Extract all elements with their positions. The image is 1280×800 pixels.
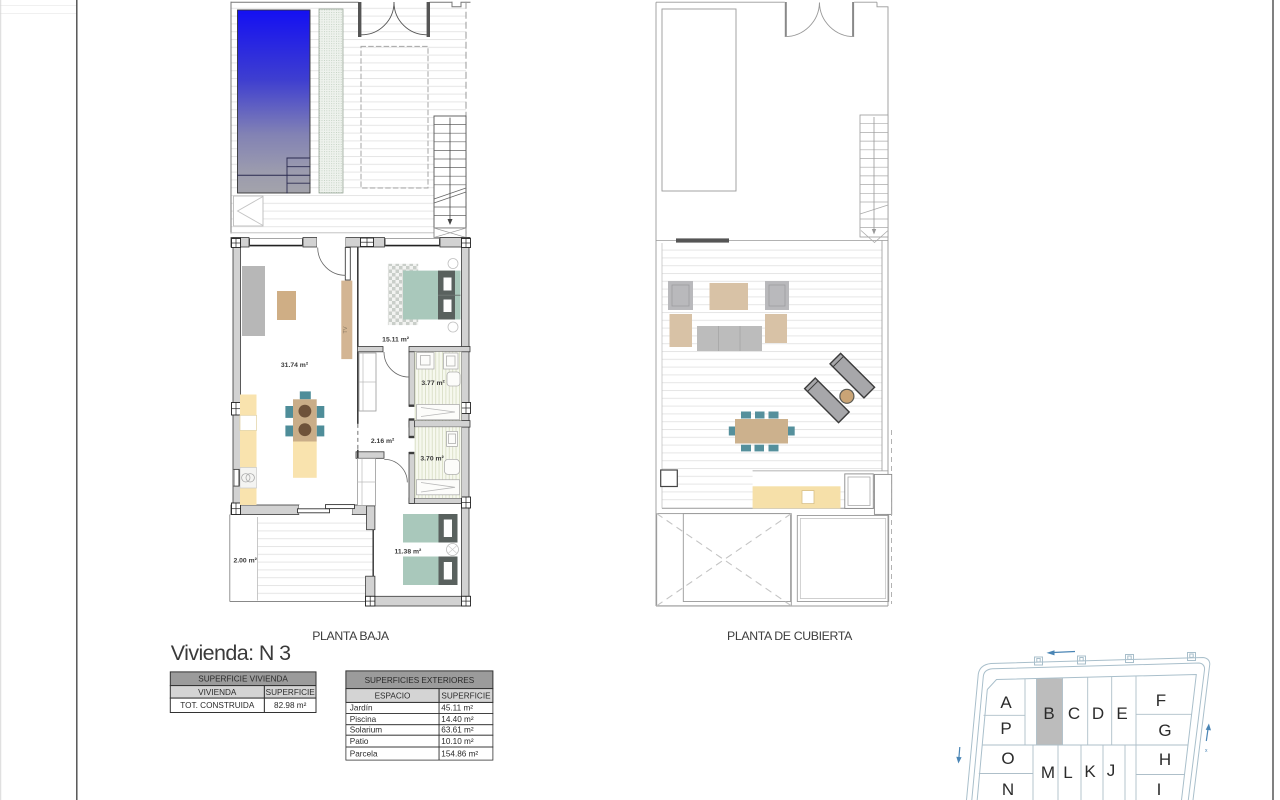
svg-text:N: N bbox=[1002, 780, 1014, 799]
svg-text:L: L bbox=[1063, 763, 1072, 782]
svg-text:F: F bbox=[1156, 691, 1166, 710]
svg-text:K: K bbox=[1084, 762, 1096, 781]
svg-text:15.11 m²: 15.11 m² bbox=[382, 336, 410, 343]
svg-text:O: O bbox=[1001, 749, 1014, 768]
svg-text:PLANTA DE CUBIERTA: PLANTA DE CUBIERTA bbox=[727, 629, 853, 643]
svg-text:45.11 m²: 45.11 m² bbox=[441, 704, 473, 713]
svg-text:3.77 m²: 3.77 m² bbox=[421, 380, 445, 387]
svg-text:SUPERFICIE: SUPERFICIE bbox=[266, 688, 316, 697]
svg-text:63.61 m²: 63.61 m² bbox=[441, 725, 474, 734]
svg-text:G: G bbox=[1158, 721, 1171, 740]
svg-text:82.98 m²: 82.98 m² bbox=[274, 701, 307, 710]
svg-text:J: J bbox=[1107, 761, 1116, 780]
svg-text:TV: TV bbox=[343, 326, 349, 333]
svg-text:2.00 m²: 2.00 m² bbox=[233, 558, 257, 565]
svg-text:14.40 m²: 14.40 m² bbox=[441, 715, 474, 724]
svg-text:A: A bbox=[1000, 693, 1012, 712]
svg-text:11.38 m²: 11.38 m² bbox=[394, 549, 422, 556]
svg-text:Piscina: Piscina bbox=[350, 715, 377, 724]
svg-text:M: M bbox=[1041, 763, 1055, 782]
svg-text:D: D bbox=[1092, 704, 1104, 723]
svg-text:Jardín: Jardín bbox=[350, 704, 373, 713]
svg-text:SUPERFICIE VIVIENDA: SUPERFICIE VIVIENDA bbox=[198, 675, 288, 684]
svg-text:ESPACIO: ESPACIO bbox=[375, 692, 411, 701]
svg-text:P: P bbox=[1000, 719, 1011, 738]
svg-text:154.86 m²: 154.86 m² bbox=[441, 749, 478, 758]
svg-text:3.70 m²: 3.70 m² bbox=[420, 455, 444, 462]
svg-text:Vivienda: N 3: Vivienda: N 3 bbox=[171, 641, 291, 665]
svg-text:H: H bbox=[1159, 750, 1171, 769]
svg-text:Patio: Patio bbox=[350, 737, 369, 746]
svg-text:TOT. CONSTRUIDA: TOT. CONSTRUIDA bbox=[180, 701, 255, 710]
svg-text:E: E bbox=[1116, 704, 1127, 723]
svg-text:B: B bbox=[1043, 704, 1054, 723]
svg-text:SUPERFICIE: SUPERFICIE bbox=[441, 692, 491, 701]
svg-text:VIVIENDA: VIVIENDA bbox=[198, 688, 237, 697]
svg-text:C: C bbox=[1068, 704, 1080, 723]
svg-text:Parcela: Parcela bbox=[350, 749, 378, 758]
svg-text:31.74 m²: 31.74 m² bbox=[281, 362, 309, 369]
svg-text:I: I bbox=[1157, 780, 1162, 799]
svg-text:Solarium: Solarium bbox=[350, 725, 382, 734]
svg-text:2.16 m²: 2.16 m² bbox=[371, 438, 395, 445]
svg-text:10.10 m²: 10.10 m² bbox=[441, 737, 474, 746]
svg-text:SUPERFICIES EXTERIORES: SUPERFICIES EXTERIORES bbox=[365, 676, 475, 685]
svg-text:PLANTA BAJA: PLANTA BAJA bbox=[312, 629, 390, 643]
